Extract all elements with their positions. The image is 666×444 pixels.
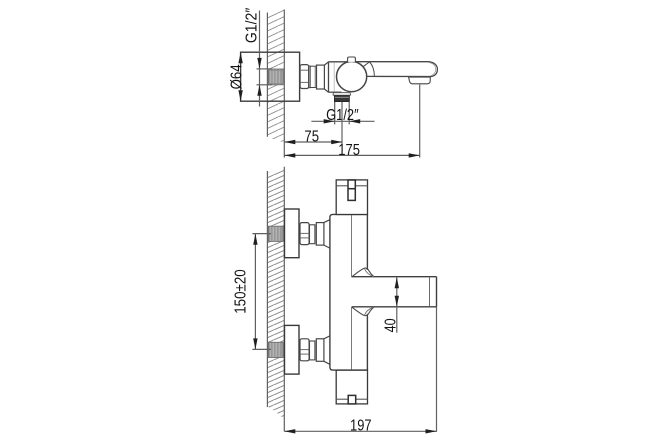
svg-text:75: 75 bbox=[304, 128, 319, 145]
svg-text:40: 40 bbox=[383, 318, 400, 332]
svg-text:150±20: 150±20 bbox=[232, 269, 249, 314]
svg-text:G1/2″: G1/2″ bbox=[243, 7, 260, 43]
svg-text:Ø64: Ø64 bbox=[228, 64, 245, 89]
svg-text:197: 197 bbox=[350, 417, 372, 434]
svg-text:175: 175 bbox=[338, 142, 360, 159]
